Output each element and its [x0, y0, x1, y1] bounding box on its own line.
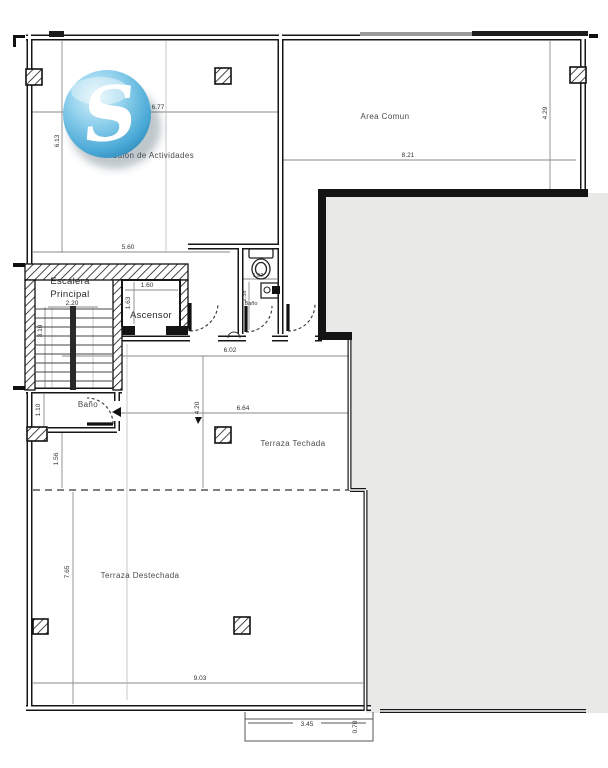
dim-area-comun-width: 8.21 [402, 152, 415, 159]
sink-icon [261, 283, 280, 298]
dim-terraza-destechada-width: 9.03 [194, 675, 207, 682]
column-icon [570, 67, 586, 83]
door-hall-terraza [288, 304, 315, 331]
room-label-bano-izquierdo: Baño [78, 400, 98, 409]
room-label-terraza-techada: Terraza Techada [261, 439, 326, 448]
dim-escalera-width: 2.20 [66, 300, 79, 307]
elevator-door-stubs [122, 326, 188, 335]
dim-bano-central-width: 1.02 [253, 273, 264, 279]
column-icon [234, 617, 250, 634]
column-icon [27, 427, 47, 441]
logo-watermark: S [63, 69, 161, 169]
floor-plan-canvas: Salon de Actividades Area Comun Escalera… [0, 0, 608, 768]
column-icon [215, 68, 231, 84]
column-icon [26, 69, 42, 85]
column-icon [215, 427, 231, 443]
room-label-area-comun: Area Comun [361, 112, 410, 121]
dim-terraza-destechada-height: 7.65 [64, 565, 71, 578]
door-elevator-hall [190, 303, 218, 331]
dim-hall-width: 6.02 [224, 347, 237, 354]
room-label-terraza-destechada: Terraza Destechada [101, 571, 180, 580]
dim-step-width: 3.45 [301, 721, 314, 728]
room-label-ascensor: Ascensor [130, 310, 172, 321]
dimension-arrows [112, 407, 202, 424]
room-label-escalera-line2: Principal [50, 289, 89, 300]
dim-ascensor-height: 1.63 [125, 296, 132, 309]
dim-upper-strip: 1.56 [53, 452, 60, 465]
dim-area-comun-height: 4.29 [542, 106, 549, 119]
dim-ascensor-width: 1.60 [141, 282, 154, 289]
window-band [360, 32, 472, 36]
dim-escalera-height: 3.10 [37, 324, 44, 337]
dim-salon-bottom: 5.60 [122, 244, 135, 251]
door-bano-central [246, 306, 272, 332]
column-icon [33, 619, 48, 634]
dim-bano-central-height: 2.38 [242, 291, 248, 302]
dim-terraza-techada-width: 6.64 [237, 405, 250, 412]
dim-step-depth: 0.70 [352, 720, 359, 733]
floor-plan-page: Salon de Actividades Area Comun Escalera… [0, 0, 608, 768]
room-label-escalera-line1: Escalera [50, 276, 90, 287]
dim-terraza-techada-height: 4.20 [194, 401, 201, 414]
dim-bano-izquierdo-height: 1.10 [35, 403, 42, 416]
logo-letter: S [79, 69, 141, 160]
stair-stringer [70, 306, 76, 390]
stairs [35, 306, 112, 390]
dim-salon-height: 6.13 [54, 134, 61, 147]
